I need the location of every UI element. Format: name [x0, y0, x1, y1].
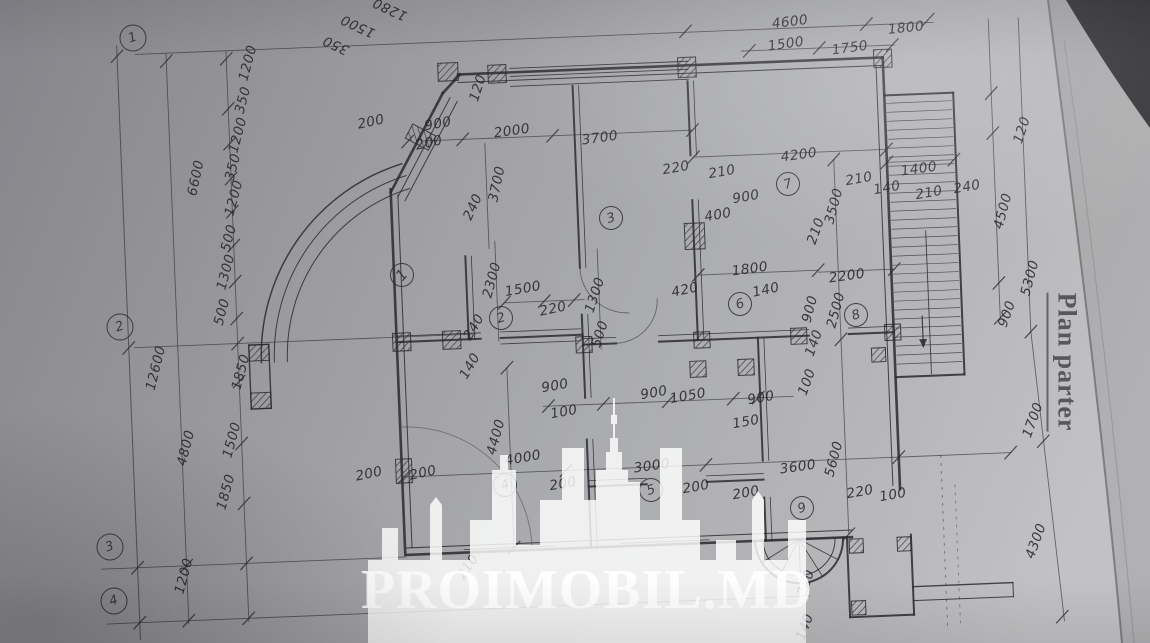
- room-marker: 9: [790, 496, 814, 520]
- room-marker: 3: [599, 206, 623, 230]
- axis-marker-number: 1: [127, 30, 140, 47]
- room-marker-number: 3: [605, 210, 618, 227]
- room-marker: 5: [639, 478, 663, 502]
- markers-layer: 1234123456789: [0, 0, 1150, 643]
- room-marker-number: 6: [734, 296, 747, 313]
- room-marker: 8: [844, 303, 868, 327]
- room-marker: 6: [728, 292, 752, 316]
- room-marker-number: 9: [796, 500, 809, 517]
- room-marker-number: 8: [850, 307, 863, 324]
- axis-marker: 2: [107, 314, 134, 341]
- axis-marker: 4: [101, 588, 128, 615]
- room-marker-number: 2: [495, 310, 508, 327]
- room-marker: 1: [390, 263, 414, 287]
- axis-marker: 3: [97, 534, 124, 561]
- room-marker-number: 7: [782, 176, 795, 193]
- room-marker: 4: [493, 473, 517, 497]
- room-marker: 7: [776, 172, 800, 196]
- room-marker-number: 4: [499, 477, 512, 494]
- axis-marker: 1: [120, 25, 147, 52]
- axis-marker-number: 4: [108, 593, 121, 610]
- axis-marker-number: 2: [114, 319, 127, 336]
- axis-marker-number: 3: [104, 539, 117, 556]
- room-marker-number: 1: [392, 265, 412, 284]
- room-marker-number: 5: [645, 482, 658, 499]
- room-marker: 2: [489, 306, 513, 330]
- photo-of-floor-plan: 4600150017501800350150012801200350120035…: [0, 0, 1150, 643]
